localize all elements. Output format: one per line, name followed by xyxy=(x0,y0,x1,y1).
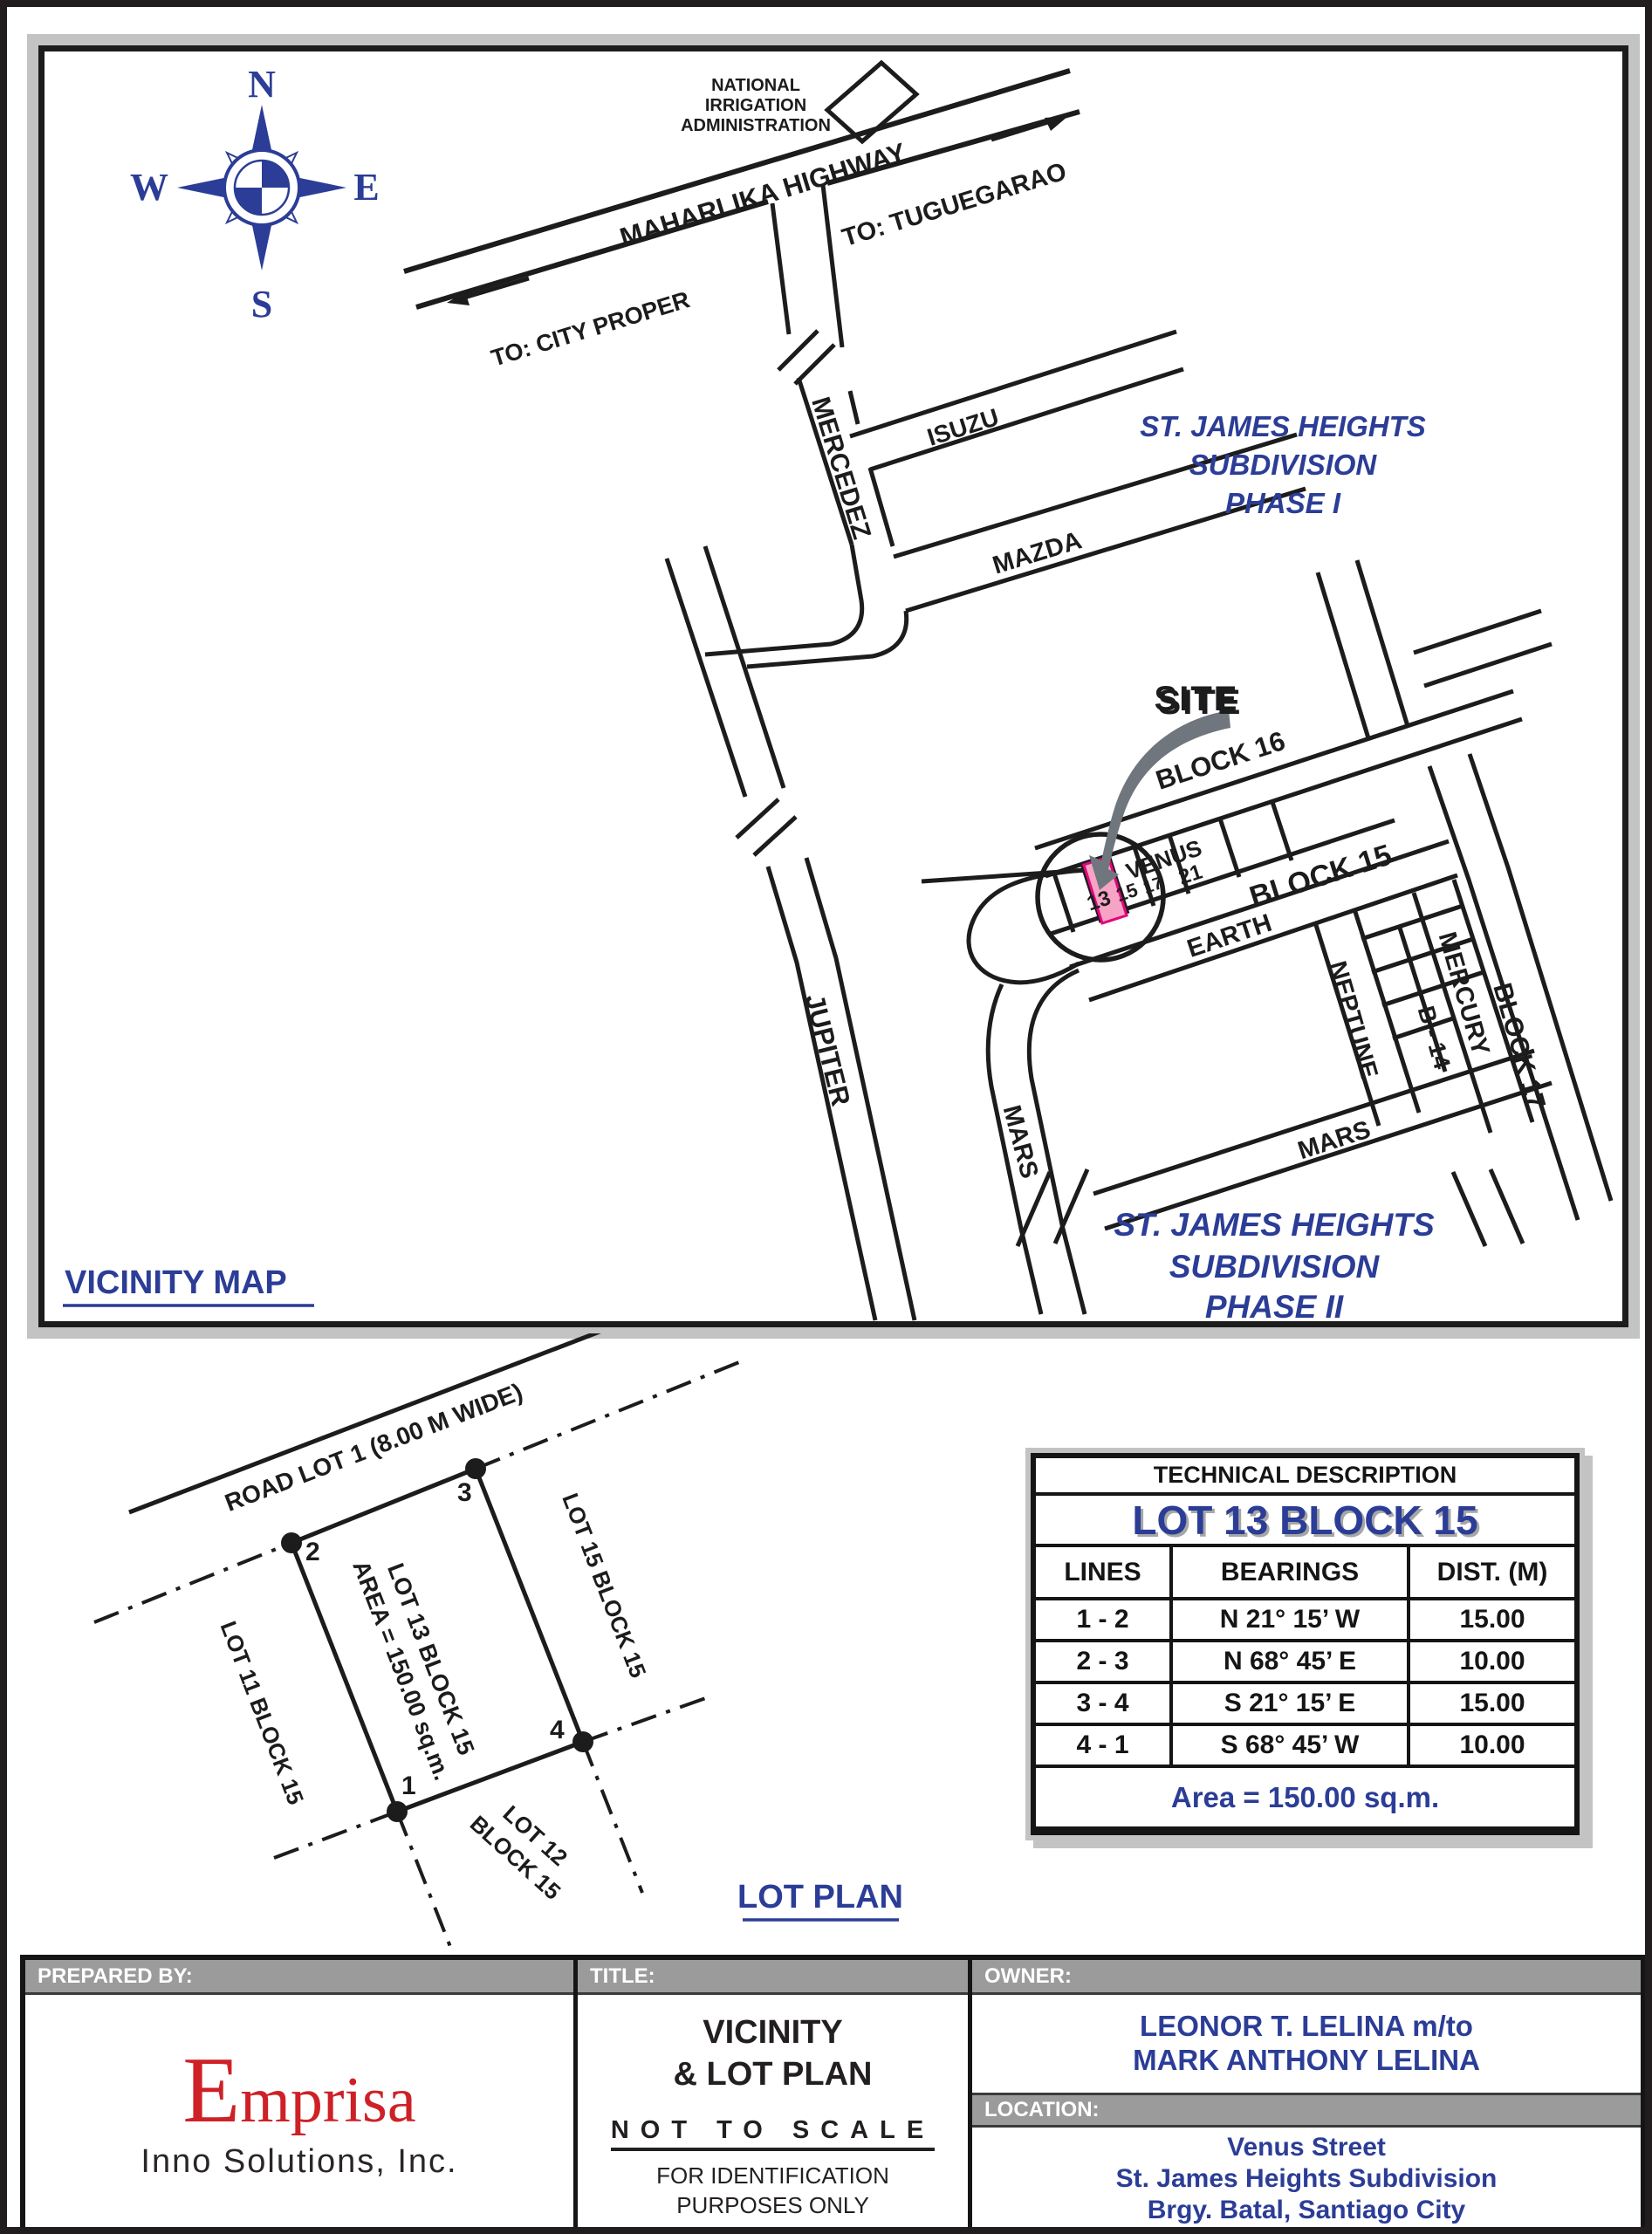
jupiter-street: JUPITER xyxy=(667,545,915,1320)
phase2-line2: SUBDIVISION xyxy=(1169,1249,1381,1285)
cell-dist: 15.00 xyxy=(1410,1684,1574,1723)
cell-lines: 1 - 2 xyxy=(1036,1600,1173,1639)
corner-3: 3 xyxy=(457,1478,472,1507)
logo-initial: E xyxy=(182,2039,240,2142)
phase1-label: ST. JAMES HEIGHTS SUBDIVISION PHASE I xyxy=(1140,410,1426,519)
title-cell: TITLE: VICINITY & LOT PLAN NOT TO SCALE … xyxy=(578,1960,972,2230)
table-row: 4 - 1 S 68° 45’ W 10.00 xyxy=(1036,1726,1574,1768)
location-line2: St. James Heights Subdivision xyxy=(1116,2163,1498,2195)
not-to-scale-note: NOT TO SCALE xyxy=(611,2116,935,2151)
corner-4: 4 xyxy=(550,1716,565,1744)
cell-bearing: N 68° 45’ E xyxy=(1173,1642,1410,1681)
road-lot-1: ROAD LOT 1 (8.00 M WIDE) xyxy=(129,1333,738,1517)
nia-label-1: NATIONAL xyxy=(711,76,800,95)
compass-s: S xyxy=(251,283,272,326)
purpose-line1: FOR IDENTIFICATION xyxy=(578,2162,968,2191)
b14-label: B - 14 xyxy=(1413,1003,1456,1072)
title-block: PREPARED BY: Emprisa Inno Solutions, Inc… xyxy=(20,1955,1646,2234)
corner-2: 2 xyxy=(305,1538,320,1566)
td-area-row: Area = 150.00 sq.m. xyxy=(1036,1768,1574,1830)
cell-bearing: N 21° 15’ W xyxy=(1173,1600,1410,1639)
compass-w: W xyxy=(130,166,168,209)
phase1-line1: ST. JAMES HEIGHTS xyxy=(1140,410,1426,442)
cell-dist: 10.00 xyxy=(1410,1726,1574,1765)
td-header-row: LINES BEARINGS DIST. (M) xyxy=(1036,1547,1574,1600)
col-lines: LINES xyxy=(1036,1547,1173,1597)
cell-bearing: S 21° 15’ E xyxy=(1173,1684,1410,1723)
lot11-neighbor-label: LOT 11 BLOCK 15 xyxy=(216,1618,310,1808)
compass-rose-icon: N S W E xyxy=(130,63,380,326)
title-label: TITLE: xyxy=(578,1960,968,1995)
table-row: 3 - 4 S 21° 15’ E 15.00 xyxy=(1036,1684,1574,1726)
lot13-parcel: 1 2 3 4 LOT 13 BLOCK 15 AREA = 150.00 sq… xyxy=(216,1458,652,1905)
earth-label: EARTH xyxy=(1184,909,1276,963)
technical-description-table: TECHNICAL DESCRIPTION LOT 13 BLOCK 15 LI… xyxy=(1025,1448,1585,1840)
col-dist: DIST. (M) xyxy=(1410,1547,1574,1597)
table-row: 1 - 2 N 21° 15’ W 15.00 xyxy=(1036,1600,1574,1642)
vicinity-map-panel: N S W E NATIONAL IRRIGATION ADMINISTRATI… xyxy=(38,45,1628,1327)
mercedez-label: MERCEDEZ xyxy=(805,394,876,543)
lot15-neighbor-label: LOT 15 BLOCK 15 xyxy=(557,1490,651,1682)
cell-bearing: S 68° 45’ W xyxy=(1173,1726,1410,1765)
location-line1: Venus Street xyxy=(1227,2132,1386,2163)
location-label: LOCATION: xyxy=(972,2093,1641,2128)
cell-dist: 10.00 xyxy=(1410,1642,1574,1681)
road-break-icon xyxy=(737,799,796,855)
cell-lines: 3 - 4 xyxy=(1036,1684,1173,1723)
lot-plan-title: LOT PLAN xyxy=(737,1879,903,1920)
table-row: 2 - 3 N 68° 45’ E 10.00 xyxy=(1036,1642,1574,1684)
cell-lines: 4 - 1 xyxy=(1036,1726,1173,1765)
vicinity-map-title-text: VICINITY MAP xyxy=(65,1264,287,1301)
arrow-right-icon xyxy=(1045,116,1068,131)
corner-1: 1 xyxy=(401,1771,416,1800)
phase1-line2: SUBDIVISION xyxy=(1189,449,1378,481)
purpose-line2: PURPOSES ONLY xyxy=(578,2191,968,2221)
road-lot1-label: ROAD LOT 1 (8.00 M WIDE) xyxy=(221,1378,526,1517)
compass-e: E xyxy=(353,166,379,209)
compass-n: N xyxy=(248,63,276,106)
survey-plan-page: N S W E NATIONAL IRRIGATION ADMINISTRATI… xyxy=(0,0,1652,2234)
company-logo: Emprisa xyxy=(182,2044,415,2138)
site-label: SITE xyxy=(1155,680,1239,718)
nia-label-3: ADMINISTRATION xyxy=(681,116,831,135)
location-line3: Brgy. Batal, Santiago City xyxy=(1148,2195,1466,2226)
td-title: TECHNICAL DESCRIPTION xyxy=(1036,1458,1574,1496)
phase2-line1: ST. JAMES HEIGHTS xyxy=(1114,1207,1435,1243)
lot-plan-title-text: LOT PLAN xyxy=(737,1879,903,1915)
doc-title-line1: VICINITY xyxy=(578,2012,968,2054)
cell-dist: 15.00 xyxy=(1410,1600,1574,1639)
owner-label: OWNER: xyxy=(972,1960,1641,1995)
prepared-by-cell: PREPARED BY: Emprisa Inno Solutions, Inc… xyxy=(25,1960,578,2230)
owner-cell: OWNER: LEONOR T. LELINA m/to MARK ANTHON… xyxy=(972,1960,1641,2230)
vicinity-map-title: VICINITY MAP xyxy=(63,1264,314,1305)
owner-name-line1: LEONOR T. LELINA m/to xyxy=(1140,2010,1473,2044)
road-break-icon xyxy=(778,331,834,384)
prepared-by-label: PREPARED BY: xyxy=(25,1960,573,1995)
cell-lines: 2 - 3 xyxy=(1036,1642,1173,1681)
mars-west-street: MARS xyxy=(988,970,1085,1314)
nia-label-2: IRRIGATION xyxy=(705,96,806,115)
phase1-line3: PHASE I xyxy=(1225,487,1341,519)
mars-south-street: MARS xyxy=(1093,1051,1552,1229)
company-subname: Inno Solutions, Inc. xyxy=(141,2143,457,2181)
phase2-line3: PHASE II xyxy=(1205,1289,1344,1321)
to-city-proper: TO: CITY PROPER xyxy=(488,286,693,372)
doc-title-line2: & LOT PLAN xyxy=(578,2054,968,2096)
logo-rest: mprisa xyxy=(240,2065,415,2136)
vicinity-map-drawing: N S W E NATIONAL IRRIGATION ADMINISTRATI… xyxy=(45,51,1622,1321)
owner-name-line2: MARK ANTHONY LELINA xyxy=(1133,2044,1480,2078)
isuzu-street: ISUZU xyxy=(850,332,1183,469)
col-bearings: BEARINGS xyxy=(1173,1547,1410,1597)
td-subtitle: LOT 13 BLOCK 15 xyxy=(1036,1496,1574,1547)
